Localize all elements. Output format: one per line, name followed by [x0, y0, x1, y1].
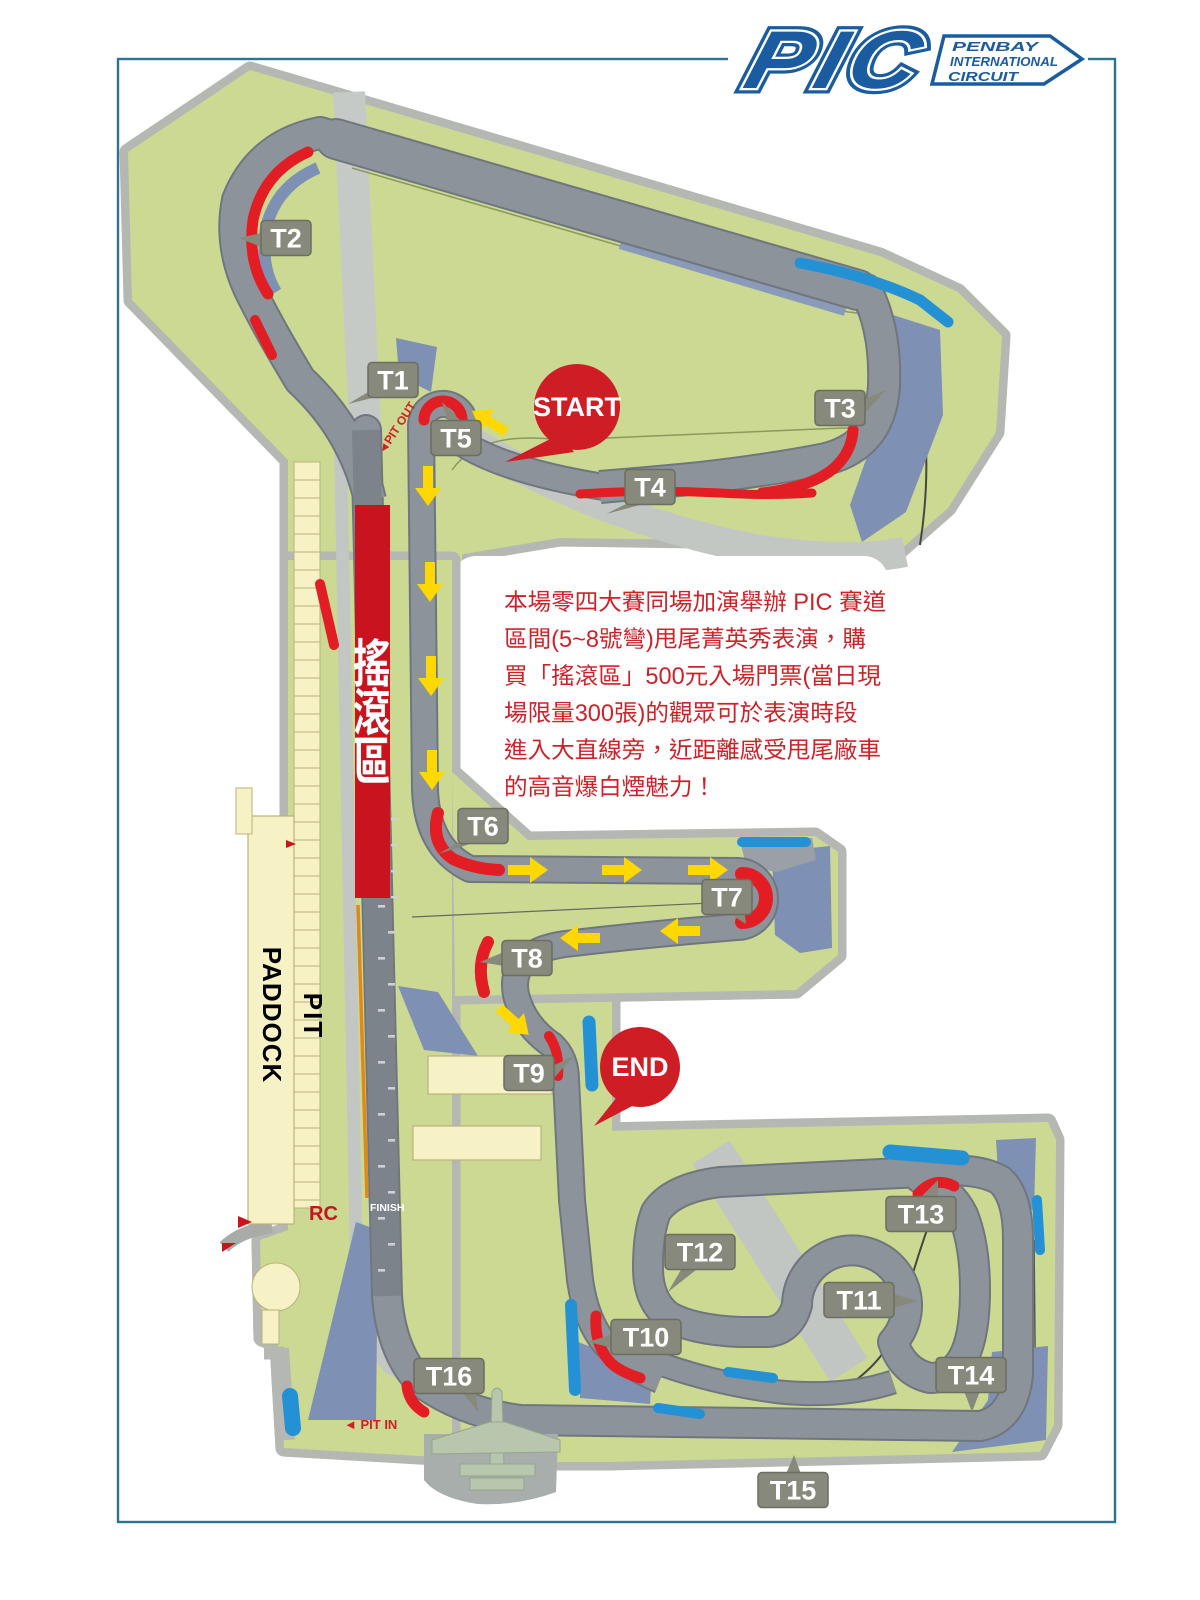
svg-text:FINISH: FINISH — [370, 1202, 404, 1214]
svg-text:T12: T12 — [677, 1238, 724, 1268]
svg-text:T2: T2 — [270, 224, 302, 254]
svg-text:T8: T8 — [511, 944, 543, 974]
svg-text:T6: T6 — [467, 812, 499, 842]
svg-text:PIC: PIC — [787, 590, 839, 616]
svg-text:T13: T13 — [898, 1200, 945, 1230]
svg-text:PIT: PIT — [298, 993, 328, 1039]
svg-text:T16: T16 — [426, 1362, 473, 1392]
svg-text:300: 300 — [575, 701, 614, 727]
svg-text:T15: T15 — [770, 1476, 817, 1506]
svg-text:(: ( — [803, 664, 811, 690]
svg-text:INTERNATIONAL: INTERNATIONAL — [950, 54, 1058, 69]
svg-text:END: END — [611, 1052, 668, 1082]
svg-text:RC: RC — [309, 1203, 338, 1225]
svg-text:T10: T10 — [623, 1323, 670, 1353]
svg-text:T14: T14 — [948, 1361, 995, 1391]
svg-text:500: 500 — [645, 664, 684, 690]
svg-text:CIRCUIT: CIRCUIT — [948, 69, 1019, 84]
svg-text:(5~8: (5~8 — [551, 627, 599, 653]
svg-text:PADDOCK: PADDOCK — [257, 947, 287, 1084]
svg-text:START: START — [533, 392, 621, 422]
svg-text:): ) — [646, 627, 654, 653]
svg-text:PIC: PIC — [736, 15, 938, 107]
svg-text:T3: T3 — [824, 394, 856, 424]
svg-text:T1: T1 — [377, 366, 409, 396]
svg-text:T4: T4 — [634, 473, 666, 503]
svg-text:): ) — [638, 701, 646, 727]
svg-text:T5: T5 — [440, 424, 472, 454]
svg-text:◄ PIT IN: ◄ PIT IN — [344, 1417, 397, 1432]
svg-text:T9: T9 — [513, 1059, 545, 1089]
svg-text:T11: T11 — [836, 1286, 881, 1316]
svg-text:T7: T7 — [711, 883, 743, 913]
svg-text:PENBAY: PENBAY — [952, 39, 1040, 54]
